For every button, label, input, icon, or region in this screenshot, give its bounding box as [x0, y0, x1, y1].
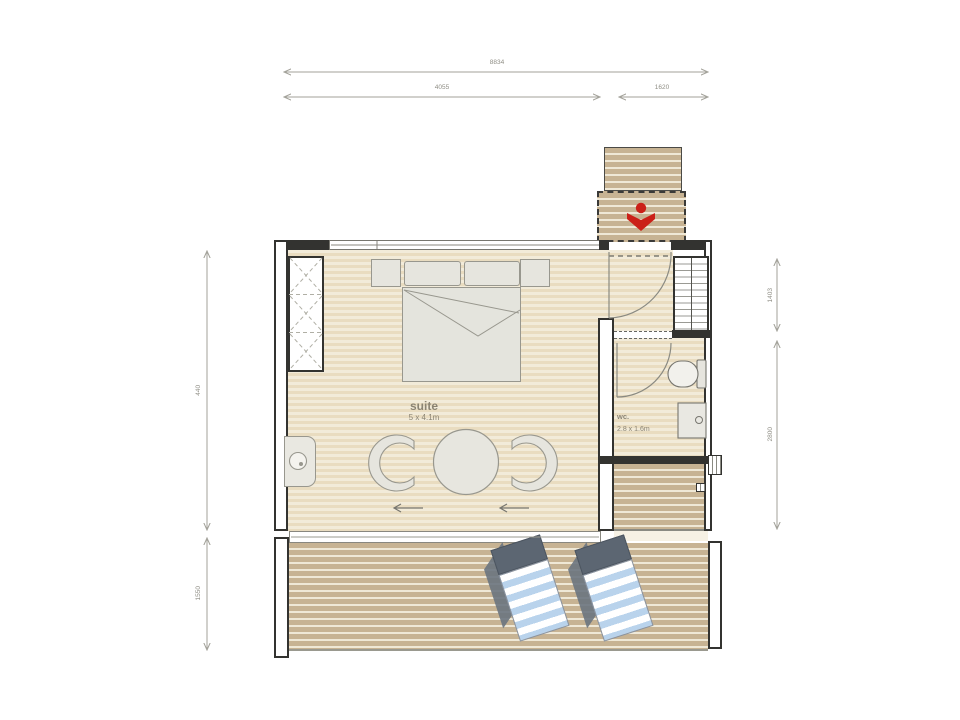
left-exterior-wall [274, 240, 288, 531]
wc-room-label: wc. [617, 412, 629, 421]
deck-right-pillar [708, 541, 722, 649]
entry-porch [604, 147, 682, 191]
hall-wc-dashed-divider [614, 331, 672, 339]
side-walkway-floor [614, 464, 704, 531]
deck-bottom-edge [289, 649, 708, 651]
wc-bottom-wall [598, 456, 712, 464]
top-wall-mid [599, 240, 609, 250]
suite-wc-divider-wall [598, 318, 614, 531]
dim-label-left-upper: 440 [196, 360, 203, 420]
dim-label-top-total: 8834 [467, 60, 527, 67]
bed-mattress [402, 287, 521, 382]
nightstand-left [371, 259, 401, 287]
suite-room-label: suite [379, 399, 469, 413]
dim-label-top-right: 1620 [632, 85, 692, 92]
wardrobe [288, 256, 324, 372]
wc-room-size: 2.8 x 1.6m [617, 426, 650, 433]
dim-label-right-upper: 1403 [768, 265, 775, 325]
wc-floor [614, 338, 704, 458]
dim-label-left-lower: 1550 [196, 563, 203, 623]
window-band [329, 240, 601, 250]
walkway-gap [614, 531, 708, 541]
deck-left-pillar [274, 537, 289, 658]
small-vent [696, 483, 706, 492]
dim-label-top-left: 4055 [412, 85, 472, 92]
sliding-glass-door [289, 531, 601, 543]
dim-label-right-lower: 2800 [768, 404, 775, 464]
wall-basin-unit [284, 436, 316, 487]
nightstand-right [520, 259, 550, 287]
suite-room-size: 5 x 4.1m [379, 413, 469, 422]
pillow-left [404, 261, 461, 286]
pillow-right [464, 261, 520, 286]
wall-vent [708, 455, 722, 475]
entry-landing-dashed [597, 191, 686, 242]
entry-steps [673, 256, 709, 332]
floor-plan-canvas: 8834 4055 1620 440 1550 1403 2800 suite … [0, 0, 960, 720]
